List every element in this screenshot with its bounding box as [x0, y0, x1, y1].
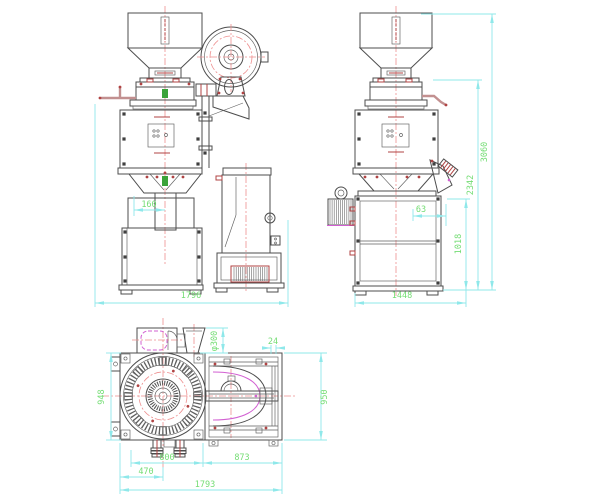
dim-text-24: 24 [268, 337, 278, 347]
dim-top-left-depth: 948 [97, 353, 121, 440]
dim-text-1793: 1793 [195, 480, 215, 490]
dim-text-1018: 1018 [454, 234, 464, 254]
front-support-column [199, 96, 249, 168]
front-base-cabinet [119, 228, 203, 294]
side-separator-box [355, 110, 438, 168]
side-base-cabinet [350, 196, 443, 295]
dim-text-3060: 3060 [480, 142, 490, 162]
side-fan-cylinder [327, 187, 354, 226]
front-mid-frame [128, 198, 194, 228]
side-view: 63 1018 2342 3060 1448 [327, 6, 496, 307]
dim-top-right-depth: 950 [284, 353, 330, 440]
side-outlet-pipe [422, 96, 447, 106]
front-inlet-pipe [99, 86, 136, 100]
cad-drawing-canvas: 160 1796 [0, 0, 600, 499]
dim-top-edge-gap: 24 [262, 337, 285, 354]
front-view: 160 1796 [95, 6, 288, 307]
dim-side-base-height: 1018 [447, 199, 470, 290]
dim-text-948: 948 [97, 389, 107, 404]
front-discharge-funnel [118, 168, 202, 230]
dim-text-950: 950 [320, 389, 330, 404]
top-husker-section [205, 357, 278, 437]
front-mill-body [130, 79, 196, 109]
machine-drawing: 160 1796 [0, 0, 600, 499]
dim-text-800: 800 [159, 453, 174, 463]
dim-text-160: 160 [141, 200, 156, 210]
front-separator-box [120, 110, 202, 168]
dim-text-2342: 2342 [466, 175, 476, 195]
dim-top-spout-offset: 470 [120, 467, 163, 481]
dim-front-spout-offset: 160 [134, 196, 165, 216]
dim-text-phi300: φ300 [210, 331, 220, 351]
front-blower-duct [196, 84, 216, 96]
dim-text-1448: 1448 [392, 291, 412, 301]
dim-top-center-width: 800 [131, 443, 203, 467]
dim-front-overall-width: 1796 [95, 104, 288, 307]
dim-text-1796: 1796 [181, 291, 201, 301]
dim-text-470: 470 [138, 467, 153, 477]
dim-side-overall-depth: 1448 [355, 290, 466, 307]
top-view: φ300 24 948 [97, 318, 330, 494]
dim-text-63: 63 [416, 205, 426, 215]
top-inlet-duct [132, 328, 185, 353]
dim-text-873: 873 [234, 453, 249, 463]
dim-top-right-width: 873 [203, 453, 282, 463]
dim-side-mill-height: 2342 [433, 80, 482, 290]
front-aspirator-cabinet [214, 163, 284, 292]
front-blower-fan [197, 24, 268, 96]
